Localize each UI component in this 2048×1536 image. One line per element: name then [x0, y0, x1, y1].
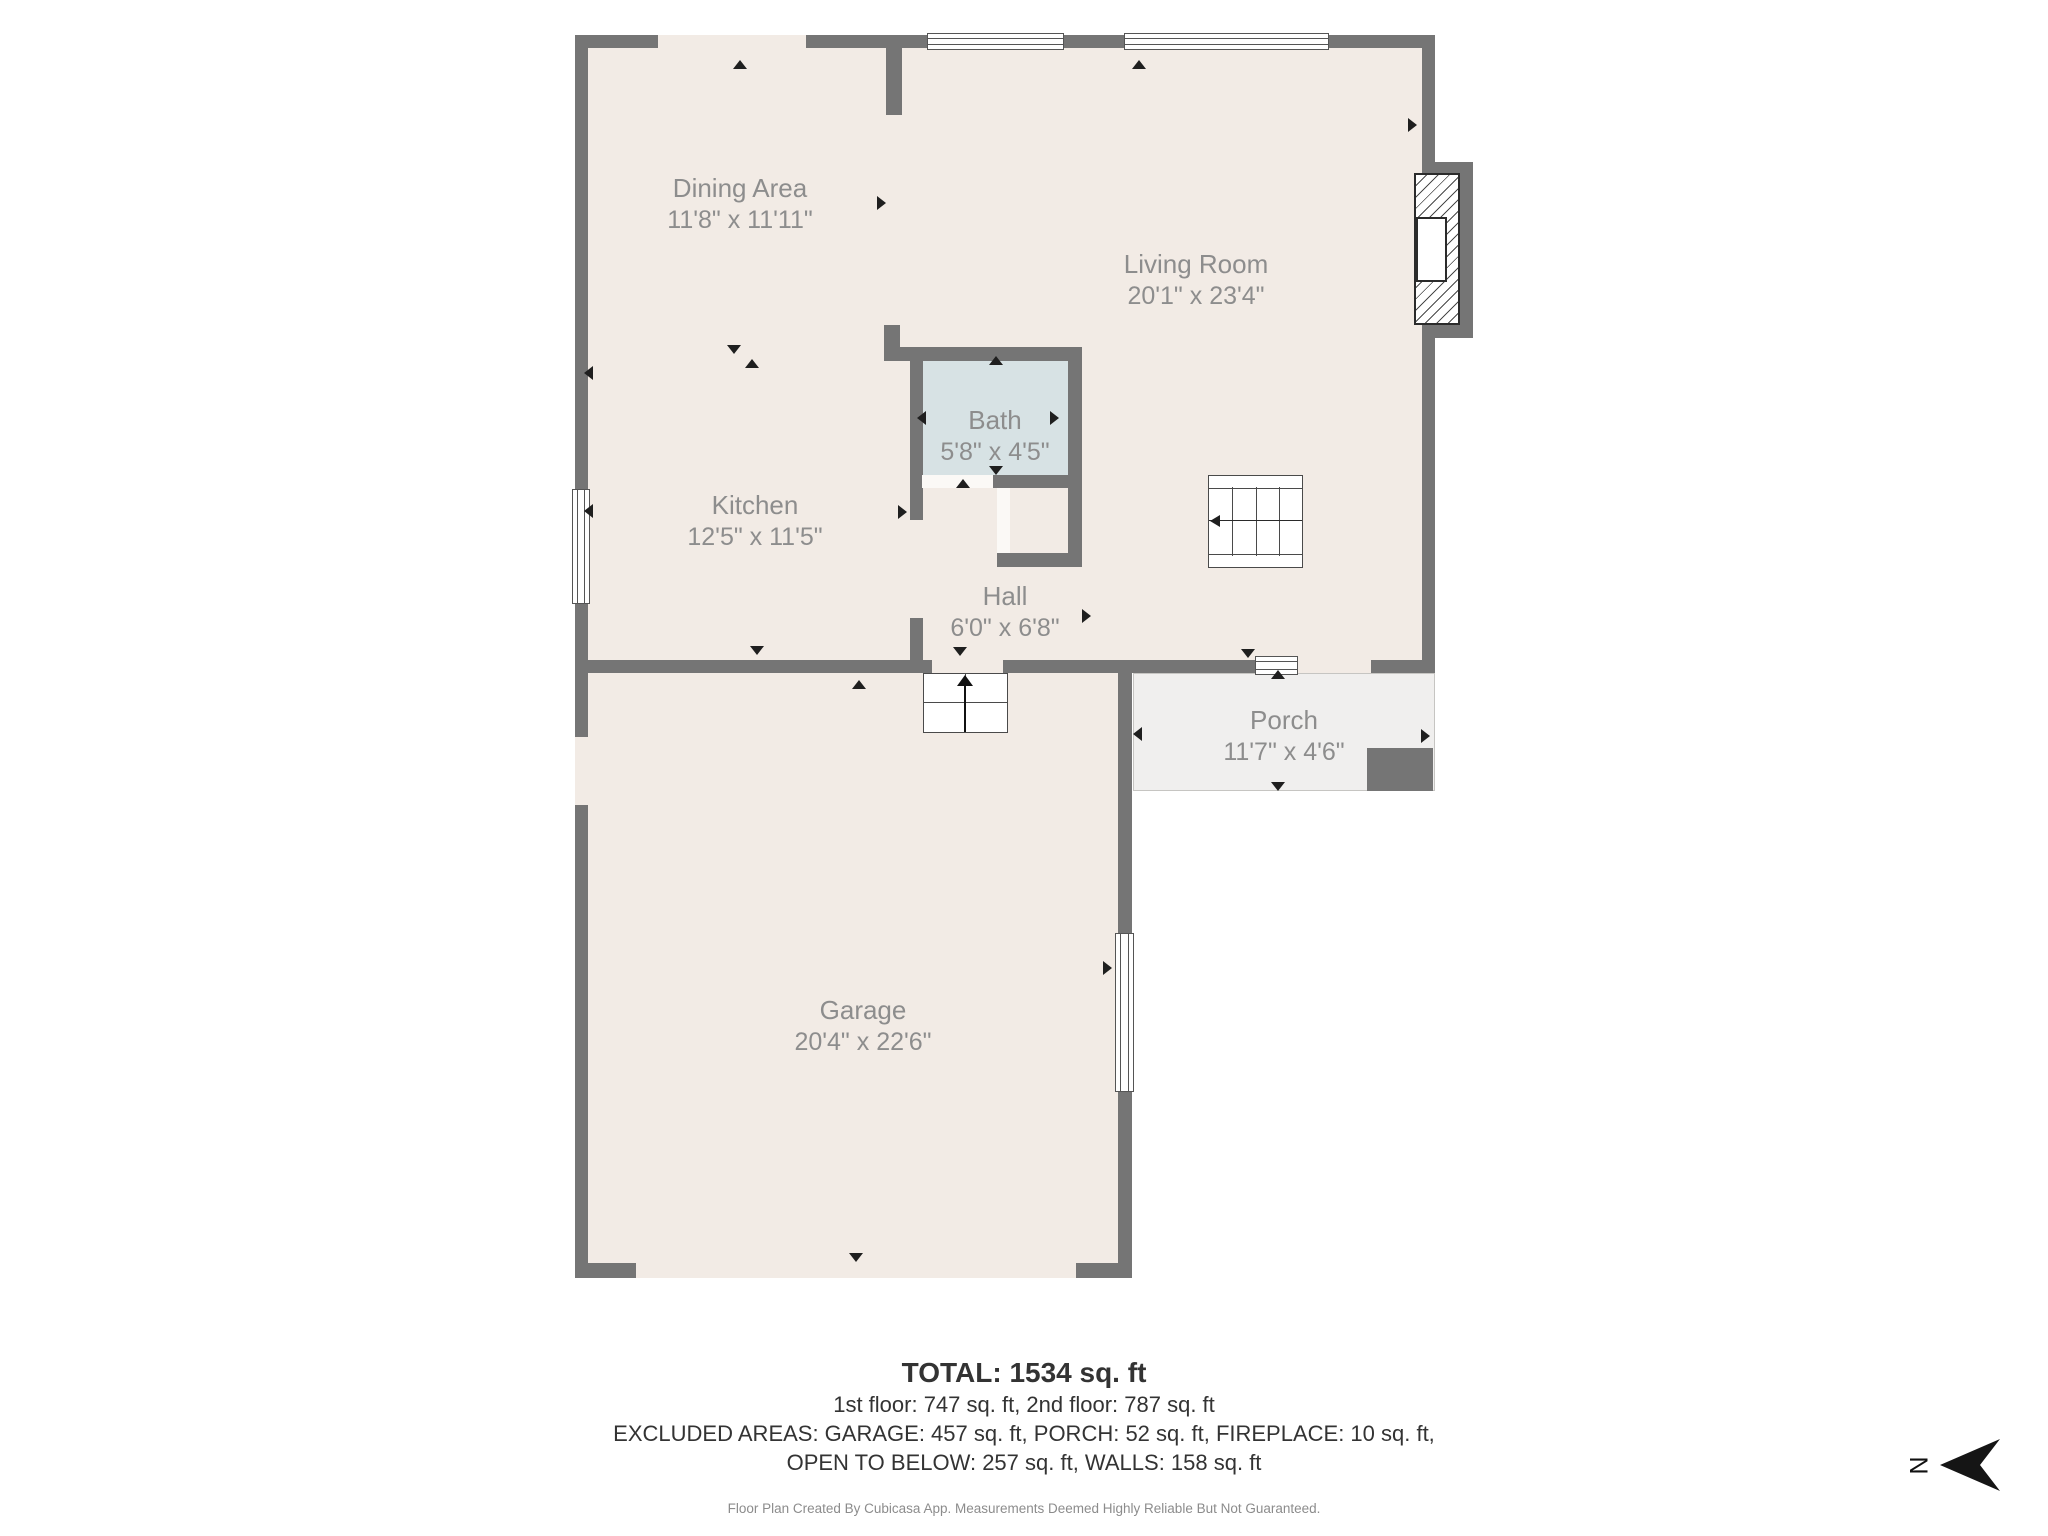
room-label-living: Living Room 20'1" x 23'4"	[1124, 248, 1269, 312]
porch-door-opening	[1298, 660, 1371, 673]
wall-marker-icon	[733, 60, 747, 69]
wall-stub	[884, 325, 900, 347]
porch-pillar	[1367, 748, 1433, 791]
entry-door-opening	[932, 660, 1003, 673]
excluded-areas-text-1: EXCLUDED AREAS: GARAGE: 457 sq. ft, PORC…	[0, 1419, 2048, 1448]
excluded-areas-text-2: OPEN TO BELOW: 257 sq. ft, WALLS: 158 sq…	[0, 1448, 2048, 1477]
wall-marker-icon	[1132, 60, 1146, 69]
room-label-bath: Bath 5'8" x 4'5"	[940, 404, 1049, 468]
room-dimensions: 5'8" x 4'5"	[940, 436, 1049, 468]
wall-marker-icon	[898, 505, 907, 519]
wall-marker-icon	[1271, 670, 1285, 679]
room-label-porch: Porch 11'7" x 4'6"	[1223, 704, 1344, 768]
room-name: Hall	[950, 580, 1059, 612]
wall-marker-icon	[1082, 609, 1091, 623]
entry-steps	[923, 673, 1008, 733]
wall-marker-icon	[750, 646, 764, 655]
closet-door-opening	[997, 488, 1010, 553]
staircase	[1208, 475, 1303, 568]
floors-area-text: 1st floor: 747 sq. ft, 2nd floor: 787 sq…	[0, 1390, 2048, 1419]
wall	[1133, 660, 1255, 673]
wall-marker-icon	[1271, 782, 1285, 791]
wall	[1371, 660, 1435, 673]
room-name: Living Room	[1124, 248, 1269, 280]
wall	[575, 805, 588, 1278]
wall-marker-icon	[584, 366, 593, 380]
steps-up-arrow-icon	[957, 675, 973, 686]
room-dimensions: 11'7" x 4'6"	[1223, 736, 1344, 768]
garage-bottom-wall	[575, 1263, 636, 1278]
wall-marker-icon	[1241, 649, 1255, 658]
wall	[1064, 35, 1124, 48]
bath-right-wall	[1068, 347, 1082, 567]
wall-marker-icon	[956, 479, 970, 488]
room-dimensions: 12'5" x 11'5"	[687, 521, 822, 553]
garage-floor-area	[588, 673, 1118, 1263]
wall-marker-icon	[1421, 729, 1430, 743]
hall-door-opening	[910, 520, 923, 618]
wall-marker-icon	[852, 680, 866, 689]
stair-direction-arrow-icon	[1210, 515, 1220, 527]
room-label-garage: Garage 20'4" x 22'6"	[794, 994, 931, 1058]
bath-top-wall	[884, 347, 1082, 361]
steps-up-arrow	[964, 684, 966, 732]
wall-marker-icon	[849, 1253, 863, 1262]
wall-marker-icon	[1050, 411, 1059, 425]
garage-right-wall	[1118, 1092, 1132, 1278]
room-dimensions: 6'0" x 6'8"	[950, 612, 1059, 644]
wall-marker-icon	[953, 647, 967, 656]
stair-direction-line	[1209, 520, 1302, 521]
room-dimensions: 20'1" x 23'4"	[1124, 280, 1269, 312]
window	[1124, 33, 1329, 50]
room-label-hall: Hall 6'0" x 6'8"	[950, 580, 1059, 644]
stair-tread-line	[1279, 487, 1280, 556]
wall-opening	[658, 35, 806, 48]
room-label-dining: Dining Area 11'8" x 11'11"	[667, 172, 812, 236]
north-label: N	[1906, 1456, 1935, 1474]
north-arrow-icon	[1938, 1437, 2002, 1493]
wall-marker-icon	[745, 359, 759, 368]
room-name: Porch	[1223, 704, 1344, 736]
room-name: Bath	[940, 404, 1049, 436]
wall-opening	[575, 737, 588, 805]
wall	[1329, 35, 1435, 48]
room-name: Kitchen	[687, 489, 822, 521]
wall-stub	[886, 48, 902, 115]
room-label-kitchen: Kitchen 12'5" x 11'5"	[687, 489, 822, 553]
wall-marker-icon	[1408, 118, 1417, 132]
disclaimer-text: Floor Plan Created By Cubicasa App. Meas…	[0, 1501, 2048, 1516]
room-dimensions: 11'8" x 11'11"	[667, 204, 812, 236]
north-indicator: N	[1905, 1430, 2025, 1505]
window	[927, 33, 1064, 50]
room-name: Garage	[794, 994, 931, 1026]
garage-right-wall	[1118, 673, 1132, 933]
room-dimensions: 20'4" x 22'6"	[794, 1026, 931, 1058]
bath-left-wall	[910, 361, 923, 520]
wall-marker-icon	[584, 504, 593, 518]
wall	[1003, 660, 1133, 673]
wall	[575, 35, 588, 489]
room-name: Dining Area	[667, 172, 812, 204]
area-summary: TOTAL: 1534 sq. ft 1st floor: 747 sq. ft…	[0, 1356, 2048, 1516]
garage-door-opening	[636, 1263, 1076, 1278]
stair-tread-line	[1256, 487, 1257, 556]
wall	[575, 660, 932, 673]
wall-marker-icon	[989, 356, 1003, 365]
wall-marker-icon	[727, 345, 741, 354]
bath-bottom-wall	[993, 475, 1082, 488]
wall-marker-icon	[877, 196, 886, 210]
garage-bottom-wall	[1076, 1263, 1132, 1278]
wall	[1422, 35, 1435, 673]
floor-plan-canvas: Dining Area 11'8" x 11'11" Living Room 2…	[0, 0, 2048, 1536]
wall-marker-icon	[1103, 961, 1112, 975]
wall-marker-icon	[917, 411, 926, 425]
fireplace-firebox	[1416, 217, 1447, 282]
stair-rail	[1208, 554, 1303, 568]
hall-left-wall	[910, 618, 923, 660]
closet-bottom-wall	[997, 553, 1082, 567]
total-area-text: TOTAL: 1534 sq. ft	[0, 1356, 2048, 1390]
garage-window	[1115, 933, 1134, 1092]
wall-marker-icon	[1133, 727, 1142, 741]
stair-tread-line	[1232, 487, 1233, 556]
wall	[806, 35, 927, 48]
